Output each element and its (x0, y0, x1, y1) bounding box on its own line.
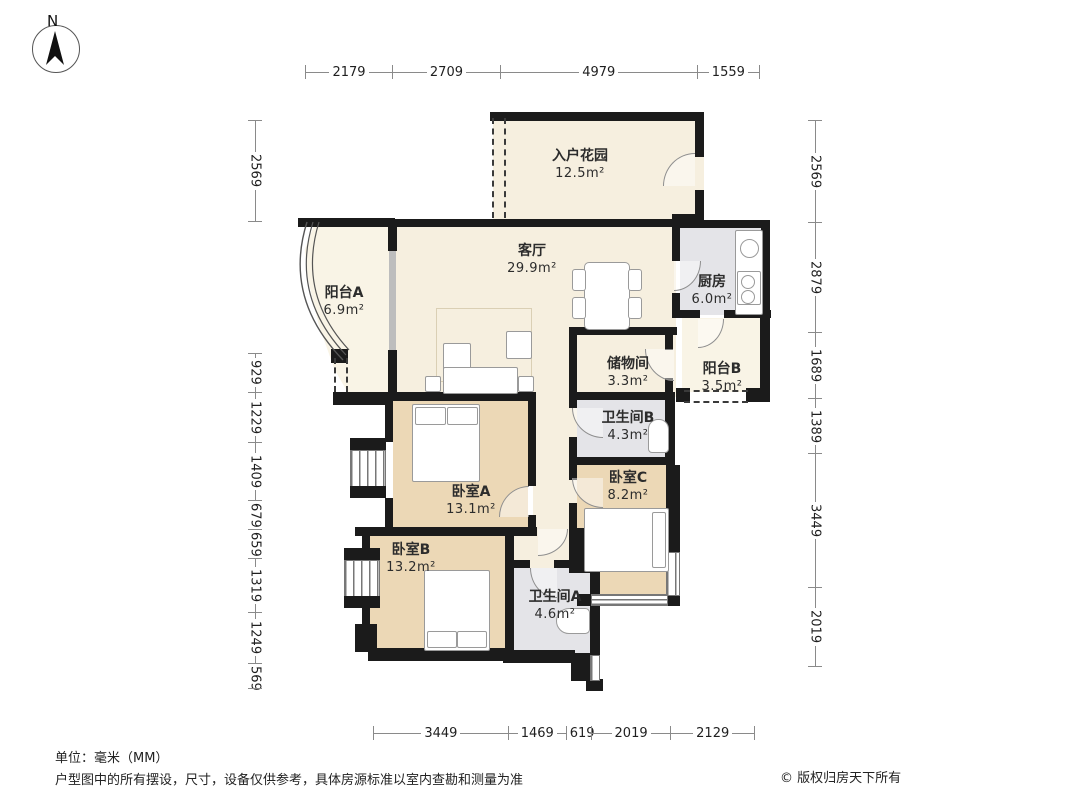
wall-segment (528, 392, 536, 486)
dining-chair (628, 269, 642, 291)
footer-disclaimer: 户型图中的所有摆设，尺寸，设备仅供参考，具体房源标准以室内查勘和测量为准 (55, 769, 523, 788)
wall-segment (695, 112, 704, 157)
footer-unit-note: 单位：毫米（MM） (55, 747, 168, 766)
pillow (652, 512, 666, 568)
dimension-left-lower: 929 1229 1409 679 659 1319 1249 569 (248, 353, 262, 689)
side-table (518, 376, 534, 392)
wall-segment (665, 335, 673, 350)
dimension-right: 2569 2879 1689 1389 3449 2019 (808, 120, 822, 667)
wall-segment (395, 219, 676, 227)
room-label-entry-garden: 入户花园 12.5m² (520, 148, 640, 182)
room-label-bath-a: 卫生间A 4.6m² (508, 589, 602, 623)
pillow (457, 631, 487, 648)
room-label-bed-c: 卧室C 8.2m² (584, 470, 672, 504)
window-cap (350, 486, 386, 498)
dashed-opening-garden (492, 118, 506, 218)
compass-needle-icon (43, 30, 67, 68)
room-label-bath-b: 卫生间B 4.3m² (581, 410, 675, 444)
compass-north-label: N (47, 12, 58, 30)
room-label-balcony-a: 阳台A 6.9m² (307, 285, 381, 319)
dimension-top: 2179 2709 4979 1559 (305, 65, 760, 79)
room-label-balcony-b: 阳台B 3.5m² (684, 361, 760, 395)
wall-segment (569, 457, 675, 465)
wall-segment (672, 310, 700, 318)
window-balcony-a-divider (389, 251, 396, 350)
wall-segment (577, 392, 673, 400)
wall-segment (528, 515, 536, 529)
window-cap (344, 596, 380, 608)
dimension-left-upper: 2569 (248, 120, 262, 222)
kitchen-sink (740, 239, 759, 258)
coffee-table (506, 331, 532, 359)
wall-segment (385, 498, 393, 529)
window-vestibule (590, 655, 600, 681)
room-label-bed-b: 卧室B 13.2m² (364, 542, 458, 576)
pillow (447, 407, 478, 425)
room-label-storage: 储物间 3.3m² (583, 356, 673, 390)
dining-table (584, 262, 630, 330)
pillow (415, 407, 446, 425)
wall-segment (388, 350, 397, 394)
sofa (443, 367, 518, 394)
wall-segment (760, 318, 770, 392)
room-label-kitchen: 厨房 6.0m² (673, 274, 751, 308)
wall-segment (490, 112, 704, 121)
wall-segment (569, 327, 577, 408)
room-label-living: 客厅 29.9m² (477, 243, 587, 277)
wall-segment (355, 527, 537, 536)
floorplan-page: N (0, 0, 1066, 800)
side-table (425, 376, 441, 392)
wall-segment (700, 220, 770, 228)
window-bed-c-bottom (591, 594, 668, 606)
dimension-bottom: 3449 1469 619 2019 2129 (373, 726, 755, 740)
wall-segment (513, 560, 530, 568)
wall-segment (388, 227, 397, 251)
pillow (427, 631, 457, 648)
room-label-bed-a: 卧室A 13.1m² (424, 484, 518, 518)
footer-copyright: © 版权归房天下所有 (780, 767, 901, 786)
dining-chair (572, 297, 586, 319)
wall-segment (333, 392, 388, 405)
bay-window-bed-a (350, 450, 386, 488)
dining-chair (628, 297, 642, 319)
wall-segment (672, 227, 680, 261)
window-cap (350, 438, 386, 450)
